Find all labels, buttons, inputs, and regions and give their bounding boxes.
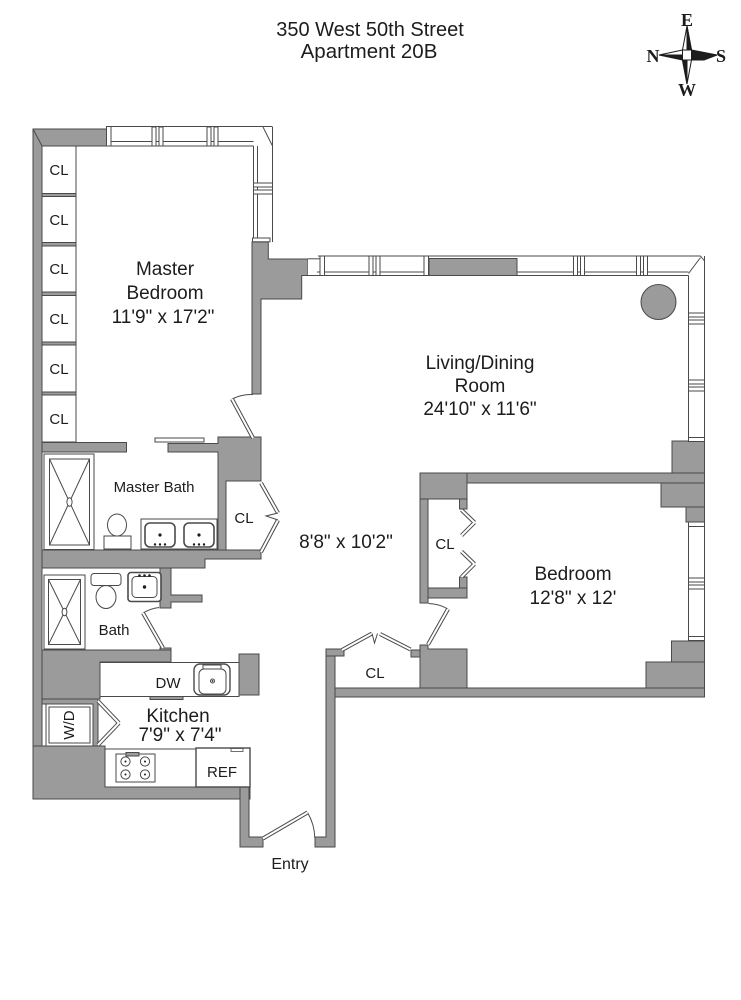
svg-text:8'8" x 10'2": 8'8" x 10'2" (299, 532, 393, 553)
svg-text:Entry: Entry (271, 856, 308, 873)
svg-text:CL: CL (49, 311, 68, 328)
svg-text:24'10" x 11'6": 24'10" x 11'6" (423, 399, 536, 420)
svg-text:DW: DW (156, 675, 182, 692)
svg-text:11'9" x 17'2": 11'9" x 17'2" (112, 307, 215, 328)
svg-text:Kitchen: Kitchen (146, 706, 209, 727)
svg-text:7'9" x 7'4": 7'9" x 7'4" (138, 725, 221, 746)
svg-text:CL: CL (49, 212, 68, 229)
svg-text:Bedroom: Bedroom (534, 564, 611, 585)
svg-text:Bath: Bath (99, 622, 130, 639)
svg-text:CL: CL (234, 510, 253, 527)
svg-text:350 West 50th Street: 350 West 50th Street (276, 19, 464, 41)
svg-text:Apartment 20B: Apartment 20B (301, 40, 438, 63)
svg-text:CL: CL (49, 411, 68, 428)
svg-text:CL: CL (365, 665, 384, 682)
svg-text:CL: CL (49, 261, 68, 278)
svg-text:Room: Room (455, 376, 506, 397)
svg-text:REF: REF (207, 764, 237, 781)
svg-text:CL: CL (49, 162, 68, 179)
svg-text:12'8" x 12': 12'8" x 12' (530, 588, 617, 609)
svg-text:CL: CL (435, 536, 454, 553)
svg-text:S: S (716, 46, 726, 66)
svg-text:W/D: W/D (61, 710, 78, 739)
svg-text:Living/Dining: Living/Dining (426, 353, 535, 374)
svg-text:Master Bath: Master Bath (114, 479, 195, 496)
svg-text:Master: Master (136, 259, 195, 280)
svg-text:W: W (678, 80, 696, 100)
svg-text:Bedroom: Bedroom (126, 283, 203, 304)
svg-text:E: E (681, 10, 693, 30)
svg-text:CL: CL (49, 361, 68, 378)
svg-text:N: N (647, 46, 660, 66)
